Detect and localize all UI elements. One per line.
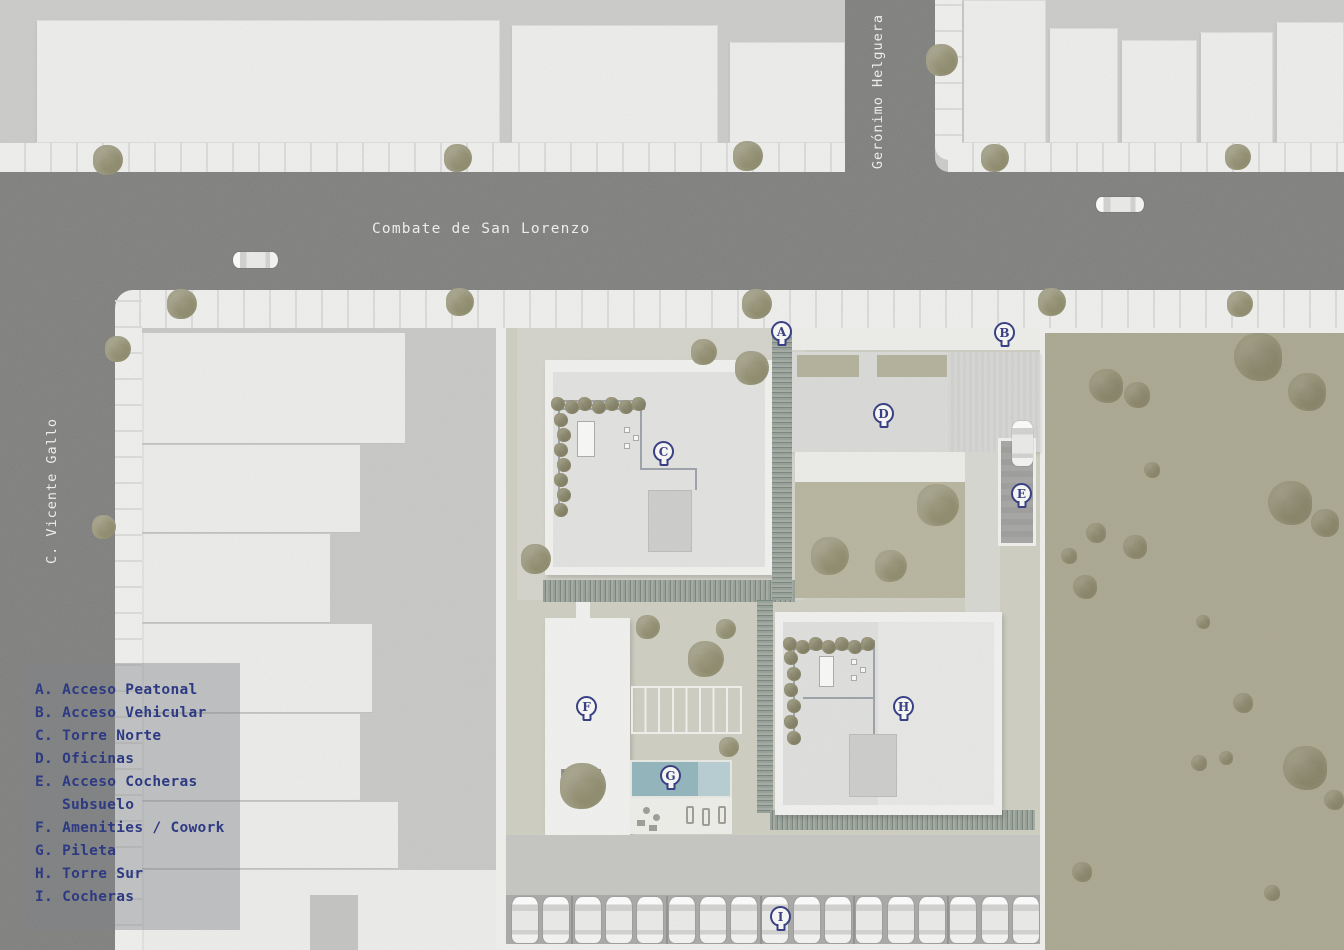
lot-shrub — [1086, 523, 1106, 543]
legend-line: F. Amenities / Cowork — [35, 817, 240, 840]
tree — [92, 515, 116, 539]
tree — [716, 619, 736, 639]
torre-norte-terrace-line — [640, 468, 697, 470]
pergola-plant-icon — [848, 640, 862, 654]
lot-shrub — [1073, 575, 1097, 599]
deck-furniture-icon — [637, 820, 645, 826]
torre-sur-terrace-seat — [851, 659, 857, 665]
map-marker-f: F — [576, 696, 597, 717]
torre-norte-terrace-table — [577, 421, 595, 457]
tree — [742, 289, 772, 319]
torre-norte-terrace-seat — [624, 427, 630, 433]
project-block-top-sidewalk — [115, 290, 1344, 328]
north-building — [1048, 28, 1118, 143]
legend-line: I. Cocheras — [35, 886, 240, 909]
tree — [735, 351, 769, 385]
parked-car-icon — [575, 897, 601, 943]
lounge-chair-icon — [718, 806, 726, 824]
parked-car-icon — [825, 897, 851, 943]
pergola-plant-icon — [557, 458, 571, 472]
torre-norte-terrace-line — [695, 468, 697, 490]
legend-line: C. Torre Norte — [35, 725, 240, 748]
lounge-chair-icon — [702, 808, 710, 826]
pergola-plant-icon — [565, 400, 579, 414]
pergola-plant-icon — [796, 640, 810, 654]
hedge-east-of-torre-norte — [772, 333, 792, 600]
parked-car-icon — [543, 897, 569, 943]
parked-car-icon — [1013, 897, 1039, 943]
pergola-plant-icon — [632, 397, 646, 411]
pergola-plant-icon — [554, 503, 568, 517]
pergola-plant-icon — [557, 488, 571, 502]
tree — [521, 544, 551, 574]
vacant-lot — [1045, 333, 1344, 950]
hedge-south-of-torre-norte — [543, 580, 795, 602]
parking-divider — [666, 896, 668, 944]
pergola-plant-icon — [557, 428, 571, 442]
pergola-plant-icon — [835, 637, 849, 651]
lounge-chair-icon — [686, 806, 694, 824]
parked-car-icon — [919, 897, 945, 943]
neighbour-house — [142, 534, 330, 622]
legend-line: H. Torre Sur — [35, 863, 240, 886]
pergola-plant-icon — [822, 640, 836, 654]
legend-line: G. Pileta — [35, 840, 240, 863]
oficinas-green-roof-strip — [797, 355, 859, 377]
torre-sur-terrace-seat — [851, 675, 857, 681]
pergola-plant-icon — [787, 699, 801, 713]
lot-shrub — [1264, 885, 1280, 901]
tree — [1225, 144, 1251, 170]
map-marker-i: I — [770, 906, 791, 927]
tree — [926, 44, 958, 76]
map-marker-d: D — [873, 403, 894, 424]
tree — [917, 484, 959, 526]
deck-furniture-icon — [649, 825, 657, 831]
parked-car-icon — [606, 897, 632, 943]
torre-norte-core — [648, 490, 692, 552]
ramp-car-icon — [1012, 421, 1033, 466]
parking-divider — [571, 896, 573, 944]
map-marker-e: E — [1011, 483, 1032, 504]
pool-deck — [630, 798, 732, 834]
parked-car-icon — [950, 897, 976, 943]
street-label-combate: Combate de San Lorenzo — [372, 221, 590, 237]
legend-line: Subsuelo — [35, 794, 240, 817]
torre-norte-terrace-seat — [624, 443, 630, 449]
lot-shrub — [1072, 862, 1092, 882]
street-car-icon — [1096, 197, 1144, 212]
tree — [560, 763, 606, 809]
map-marker-c: C — [653, 441, 674, 462]
street-label-gallo: C. Vicente Gallo — [44, 418, 60, 564]
tree — [719, 737, 739, 757]
pergola-plant-icon — [809, 637, 823, 651]
tree — [167, 289, 197, 319]
oficinas-south-walk — [795, 452, 965, 482]
tree — [444, 144, 472, 172]
parked-car-icon — [794, 897, 820, 943]
lot-shrub — [1268, 481, 1312, 525]
pergola-plant-icon — [861, 637, 875, 651]
torre-sur-terrace-line — [803, 697, 873, 699]
surface-parking-stalls — [631, 686, 742, 734]
map-marker-h: H — [893, 696, 914, 717]
pergola-plant-icon — [787, 731, 801, 745]
tree — [875, 550, 907, 582]
south-drive — [506, 835, 1040, 895]
parking-divider — [853, 896, 855, 944]
tree — [691, 339, 717, 365]
torre-norte-terrace-seat — [633, 435, 639, 441]
east-path — [965, 452, 1000, 620]
legend-line: D. Oficinas — [35, 748, 240, 771]
legend-line: A. Acceso Peatonal — [35, 679, 240, 702]
pergola-plant-icon — [605, 397, 619, 411]
lot-shrub — [1144, 462, 1160, 478]
pergola-plant-icon — [784, 715, 798, 729]
lot-shrub — [1124, 382, 1150, 408]
lot-shrub — [1324, 790, 1344, 810]
lot-shrub — [1283, 746, 1327, 790]
lot-shrub — [1233, 693, 1253, 713]
hedge-west-of-torre-sur — [757, 600, 773, 813]
deck-furniture-icon — [643, 807, 650, 814]
tree — [636, 615, 660, 639]
pool-shallow-end — [698, 762, 730, 796]
pergola-plant-icon — [554, 413, 568, 427]
amenities-entry-stub — [576, 602, 590, 618]
oficinas-green-roof-strip — [877, 355, 947, 377]
pergola-plant-icon — [554, 473, 568, 487]
torre-sur-terrace-table — [819, 656, 834, 687]
pergola-plant-icon — [578, 397, 592, 411]
street-car-icon — [233, 252, 278, 268]
parked-car-icon — [637, 897, 663, 943]
map-marker-b: B — [994, 322, 1015, 343]
parked-car-icon — [669, 897, 695, 943]
lot-shrub — [1089, 369, 1123, 403]
pergola-plant-icon — [784, 683, 798, 697]
parked-car-icon — [856, 897, 882, 943]
torre-sur-terrace-seat — [860, 667, 866, 673]
north-building — [1275, 22, 1344, 143]
torre-sur-terrace-line — [873, 640, 875, 735]
north-building — [1120, 40, 1197, 143]
tree — [1227, 291, 1253, 317]
neighbour-house — [142, 445, 360, 532]
north-building — [728, 42, 845, 143]
parked-car-icon — [731, 897, 757, 943]
legend-line: B. Acceso Vehicular — [35, 702, 240, 725]
tree — [446, 288, 474, 316]
deck-furniture-icon — [653, 814, 660, 821]
north-building — [35, 20, 500, 143]
lot-shrub — [1311, 509, 1339, 537]
parked-car-icon — [700, 897, 726, 943]
neighbour-house — [142, 333, 405, 443]
torre-sur-core — [849, 734, 897, 797]
site-plan-canvas: Combate de San Lorenzo Gerónimo Helguera… — [0, 0, 1344, 950]
tree — [733, 141, 763, 171]
lot-shrub — [1123, 535, 1147, 559]
lot-shrub — [1219, 751, 1233, 765]
pergola-plant-icon — [787, 667, 801, 681]
pergola-plant-icon — [784, 651, 798, 665]
tree — [93, 145, 123, 175]
north-building — [510, 25, 718, 143]
pergola-plant-icon — [619, 400, 633, 414]
parking-divider — [947, 896, 949, 944]
lot-shrub — [1191, 755, 1207, 771]
north-left-sidewalk — [0, 143, 845, 172]
helguera-east-sidewalk — [935, 0, 962, 160]
pergola-plant-icon — [554, 443, 568, 457]
tree — [981, 144, 1009, 172]
pergola-plant-icon — [592, 400, 606, 414]
legend-line: E. Acceso Cocheras — [35, 771, 240, 794]
lot-shrub — [1196, 615, 1210, 629]
parking-divider — [760, 896, 762, 944]
tree — [105, 336, 131, 362]
tree — [688, 641, 724, 677]
street-label-helguera: Gerónimo Helguera — [870, 14, 886, 169]
lot-shrub — [1288, 373, 1326, 411]
north-building — [962, 0, 1046, 143]
pergola-plant-icon — [551, 397, 565, 411]
parked-car-icon — [512, 897, 538, 943]
pergola-plant-icon — [783, 637, 797, 651]
lot-shrub — [1234, 333, 1282, 381]
legend: A. Acceso Peatonal B. Acceso Vehicular C… — [25, 663, 240, 930]
parked-car-icon — [982, 897, 1008, 943]
map-marker-g: G — [660, 765, 681, 786]
map-marker-a: A — [771, 321, 792, 342]
north-building — [1199, 32, 1273, 143]
lot-shrub — [1061, 548, 1077, 564]
tree — [811, 537, 849, 575]
tree — [1038, 288, 1066, 316]
neighbour-yard-patch — [310, 895, 358, 950]
parked-car-icon — [888, 897, 914, 943]
